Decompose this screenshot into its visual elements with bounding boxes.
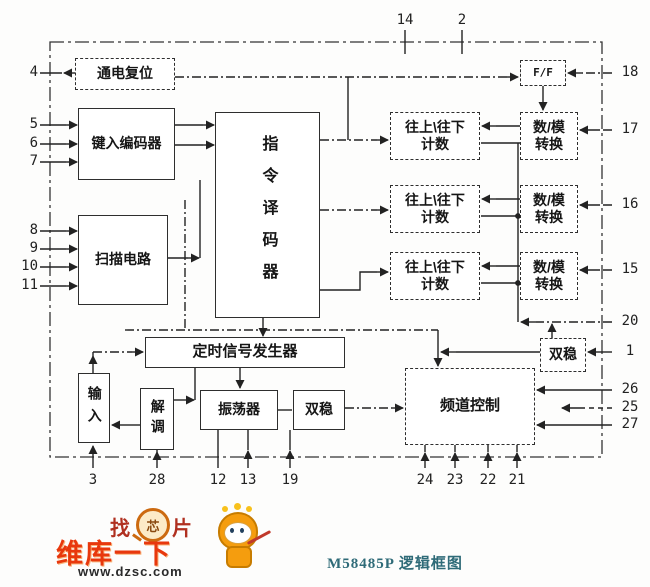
mascot-antenna-icon — [222, 506, 228, 512]
counter-label-line2: 计数 — [421, 276, 449, 294]
logic-block-diagram: 通电复位 键入编码器 扫描电路 指令译码器 F/F 往上\往下 计数 数/模 转… — [0, 0, 650, 587]
block-updown-counter-2: 往上\往下 计数 — [390, 185, 480, 233]
block-timing-generator-label: 定时信号发生器 — [192, 343, 297, 362]
counter-label-line1: 往上\往下 — [405, 259, 465, 277]
counter-label-line2: 计数 — [421, 209, 449, 227]
pin-8: 8 — [14, 222, 38, 238]
block-bistable-bottom: 双稳 — [293, 390, 345, 430]
block-key-encoder: 键入编码器 — [78, 108, 175, 180]
pin-13: 13 — [236, 472, 260, 488]
pin-9: 9 — [14, 240, 38, 256]
pin-28: 28 — [145, 472, 169, 488]
dzsc-watermark: 找 芯 片 维库一下 www.dzsc.com — [50, 506, 300, 586]
watermark-pian-text: 片 — [172, 512, 192, 541]
block-demodulator: 解调 — [140, 388, 174, 450]
pin-6: 6 — [14, 135, 38, 151]
block-updown-counter-1: 往上\往下 计数 — [390, 112, 480, 160]
counter-label-line1: 往上\往下 — [405, 192, 465, 210]
mascot-antenna-icon — [234, 503, 241, 510]
pin-14: 14 — [395, 12, 415, 28]
pin-3: 3 — [81, 472, 105, 488]
pin-18: 18 — [617, 64, 643, 80]
pin-12: 12 — [206, 472, 230, 488]
block-instruction-decoder: 指令译码器 — [215, 112, 320, 318]
mascot-body-icon — [226, 546, 252, 568]
block-oscillator: 振荡器 — [200, 390, 278, 430]
pin-2: 2 — [455, 12, 469, 28]
dac-label-line1: 数/模 — [533, 259, 565, 277]
counter-label-line2: 计数 — [421, 136, 449, 154]
pin-15: 15 — [617, 261, 643, 277]
pin-1: 1 — [617, 343, 643, 359]
mascot-eye-icon — [240, 528, 244, 533]
block-power-on-reset: 通电复位 — [75, 58, 175, 90]
block-flip-flop: F/F — [520, 60, 566, 86]
block-power-on-reset-label: 通电复位 — [97, 65, 153, 83]
pin-17: 17 — [617, 121, 643, 137]
block-input-label: 输入 — [85, 386, 103, 430]
diagram-caption: M58485P 逻辑框图 — [305, 552, 485, 573]
block-bistable-label: 双稳 — [305, 401, 333, 419]
dac-label-line2: 转换 — [535, 136, 563, 154]
block-input: 输入 — [78, 373, 110, 443]
pin-25: 25 — [617, 399, 643, 415]
pin-23: 23 — [443, 472, 467, 488]
dac-label-line1: 数/模 — [533, 119, 565, 137]
pin-11: 11 — [14, 277, 38, 293]
pin-10: 10 — [14, 258, 38, 274]
block-oscillator-label: 振荡器 — [218, 401, 260, 419]
watermark-url-text: www.dzsc.com — [78, 564, 183, 579]
dac-label-line1: 数/模 — [533, 192, 565, 210]
pin-26: 26 — [617, 381, 643, 397]
block-timing-generator: 定时信号发生器 — [145, 337, 345, 368]
pin-20: 20 — [617, 313, 643, 329]
mascot-eye-icon — [230, 528, 234, 533]
dac-label-line2: 转换 — [535, 276, 563, 294]
block-demodulator-label: 解调 — [148, 399, 166, 439]
pin-21: 21 — [505, 472, 529, 488]
pin-27: 27 — [617, 416, 643, 432]
pin-19: 19 — [278, 472, 302, 488]
pin-4: 4 — [14, 64, 38, 80]
pin-7: 7 — [14, 153, 38, 169]
block-flip-flop-label: F/F — [533, 66, 553, 80]
pin-24: 24 — [413, 472, 437, 488]
block-da-converter-3: 数/模 转换 — [520, 252, 578, 300]
block-bistable-right: 双稳 — [540, 338, 586, 372]
block-scan-circuit: 扫描电路 — [78, 215, 168, 305]
block-da-converter-1: 数/模 转换 — [520, 112, 578, 160]
block-updown-counter-3: 往上\往下 计数 — [390, 252, 480, 300]
pin-22: 22 — [476, 472, 500, 488]
dac-label-line2: 转换 — [535, 209, 563, 227]
mascot-antenna-icon — [246, 506, 252, 512]
block-scan-circuit-label: 扫描电路 — [95, 251, 151, 269]
block-channel-control: 频道控制 — [405, 368, 535, 445]
counter-label-line1: 往上\往下 — [405, 119, 465, 137]
pin-16: 16 — [617, 196, 643, 212]
block-da-converter-2: 数/模 转换 — [520, 185, 578, 233]
block-channel-control-label: 频道控制 — [440, 397, 500, 416]
block-key-encoder-label: 键入编码器 — [92, 135, 162, 153]
block-instruction-decoder-label: 指令译码器 — [258, 135, 278, 295]
pin-5: 5 — [14, 116, 38, 132]
block-bistable-label: 双稳 — [549, 346, 577, 364]
